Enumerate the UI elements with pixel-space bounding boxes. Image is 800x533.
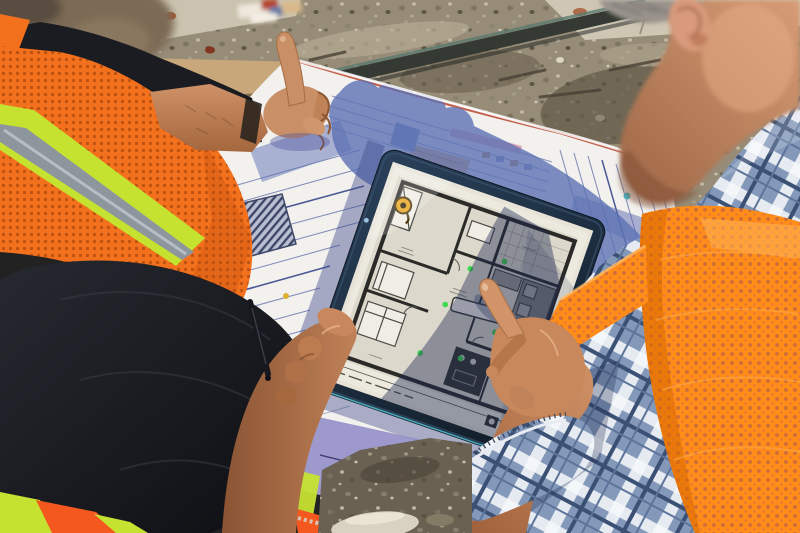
construction-site-photo (0, 0, 800, 533)
